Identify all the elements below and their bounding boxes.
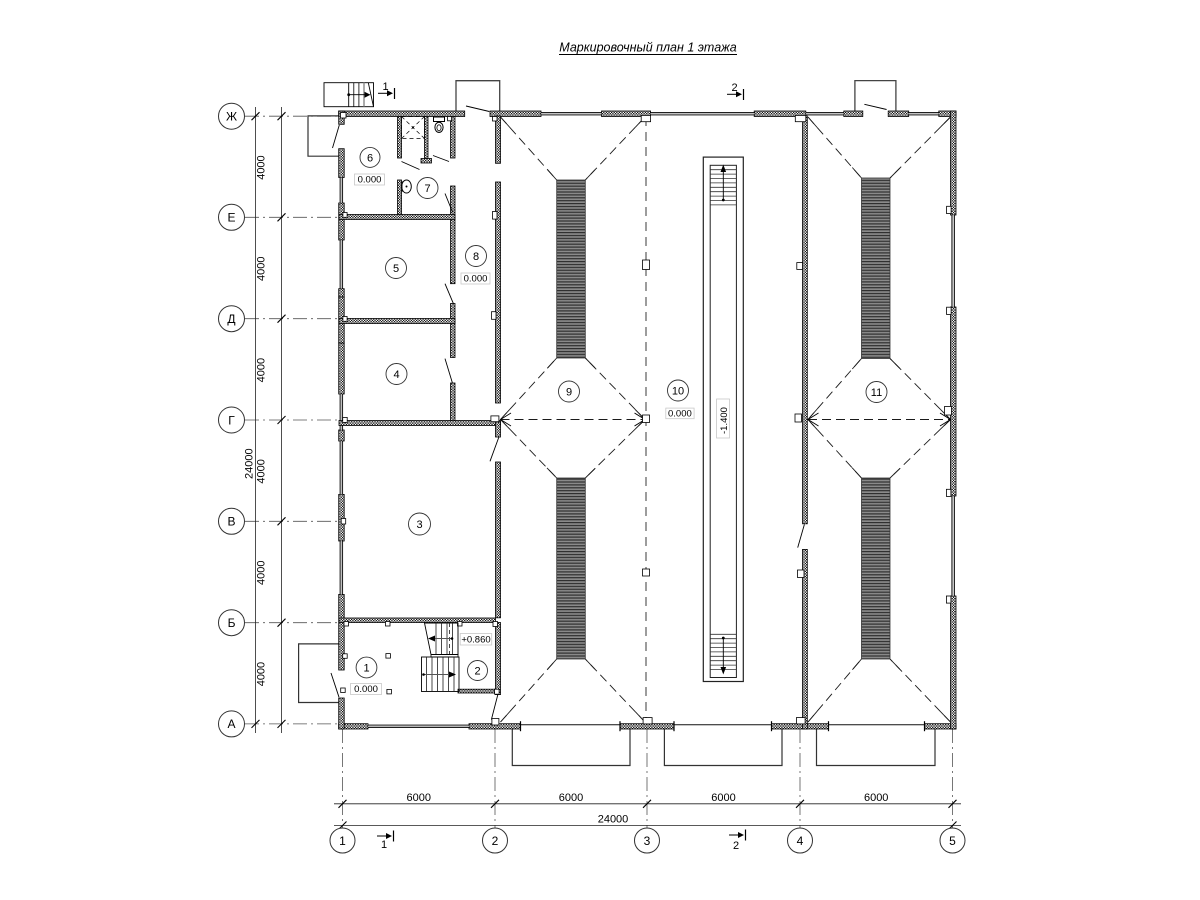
svg-text:Ж: Ж bbox=[226, 110, 237, 124]
svg-text:6000: 6000 bbox=[711, 792, 735, 804]
svg-text:0.000: 0.000 bbox=[668, 409, 692, 420]
svg-text:24000: 24000 bbox=[598, 814, 629, 826]
svg-text:0.000: 0.000 bbox=[354, 684, 378, 695]
svg-text:8: 8 bbox=[473, 251, 479, 263]
svg-text:2: 2 bbox=[492, 834, 499, 848]
svg-text:6000: 6000 bbox=[864, 792, 888, 804]
svg-text:2: 2 bbox=[474, 666, 480, 678]
svg-text:1: 1 bbox=[363, 663, 369, 675]
svg-text:10: 10 bbox=[672, 386, 684, 398]
svg-text:0.000: 0.000 bbox=[464, 274, 488, 285]
svg-text:4: 4 bbox=[393, 369, 399, 381]
svg-text:4000: 4000 bbox=[256, 459, 268, 483]
svg-text:Б: Б bbox=[228, 616, 236, 630]
svg-text:6: 6 bbox=[367, 152, 373, 164]
svg-text:4000: 4000 bbox=[256, 358, 268, 382]
svg-text:7: 7 bbox=[424, 183, 430, 195]
svg-text:2: 2 bbox=[733, 840, 739, 852]
svg-text:6000: 6000 bbox=[559, 792, 583, 804]
svg-text:1: 1 bbox=[339, 834, 346, 848]
svg-text:А: А bbox=[227, 717, 235, 731]
svg-text:В: В bbox=[227, 515, 235, 529]
svg-text:6000: 6000 bbox=[407, 792, 431, 804]
svg-text:-1.400: -1.400 bbox=[719, 407, 730, 434]
svg-text:Д: Д bbox=[227, 312, 235, 326]
svg-text:3: 3 bbox=[416, 519, 422, 531]
svg-text:24000: 24000 bbox=[244, 448, 256, 479]
svg-text:4000: 4000 bbox=[256, 257, 268, 281]
svg-text:Е: Е bbox=[227, 211, 235, 225]
svg-text:Г: Г bbox=[228, 413, 235, 427]
svg-text:9: 9 bbox=[566, 387, 572, 399]
svg-text:4000: 4000 bbox=[256, 155, 268, 179]
svg-text:0.000: 0.000 bbox=[358, 175, 382, 186]
svg-text:3: 3 bbox=[644, 834, 651, 848]
svg-text:4000: 4000 bbox=[256, 561, 268, 585]
svg-text:4000: 4000 bbox=[256, 662, 268, 686]
svg-text:Маркировочный план 1 этажа: Маркировочный план 1 этажа bbox=[559, 41, 736, 55]
svg-text:4: 4 bbox=[797, 834, 804, 848]
svg-text:1: 1 bbox=[381, 839, 387, 851]
svg-text:11: 11 bbox=[871, 387, 882, 399]
svg-text:5: 5 bbox=[393, 263, 399, 275]
svg-text:+0.860: +0.860 bbox=[461, 635, 490, 646]
svg-text:5: 5 bbox=[949, 834, 956, 848]
